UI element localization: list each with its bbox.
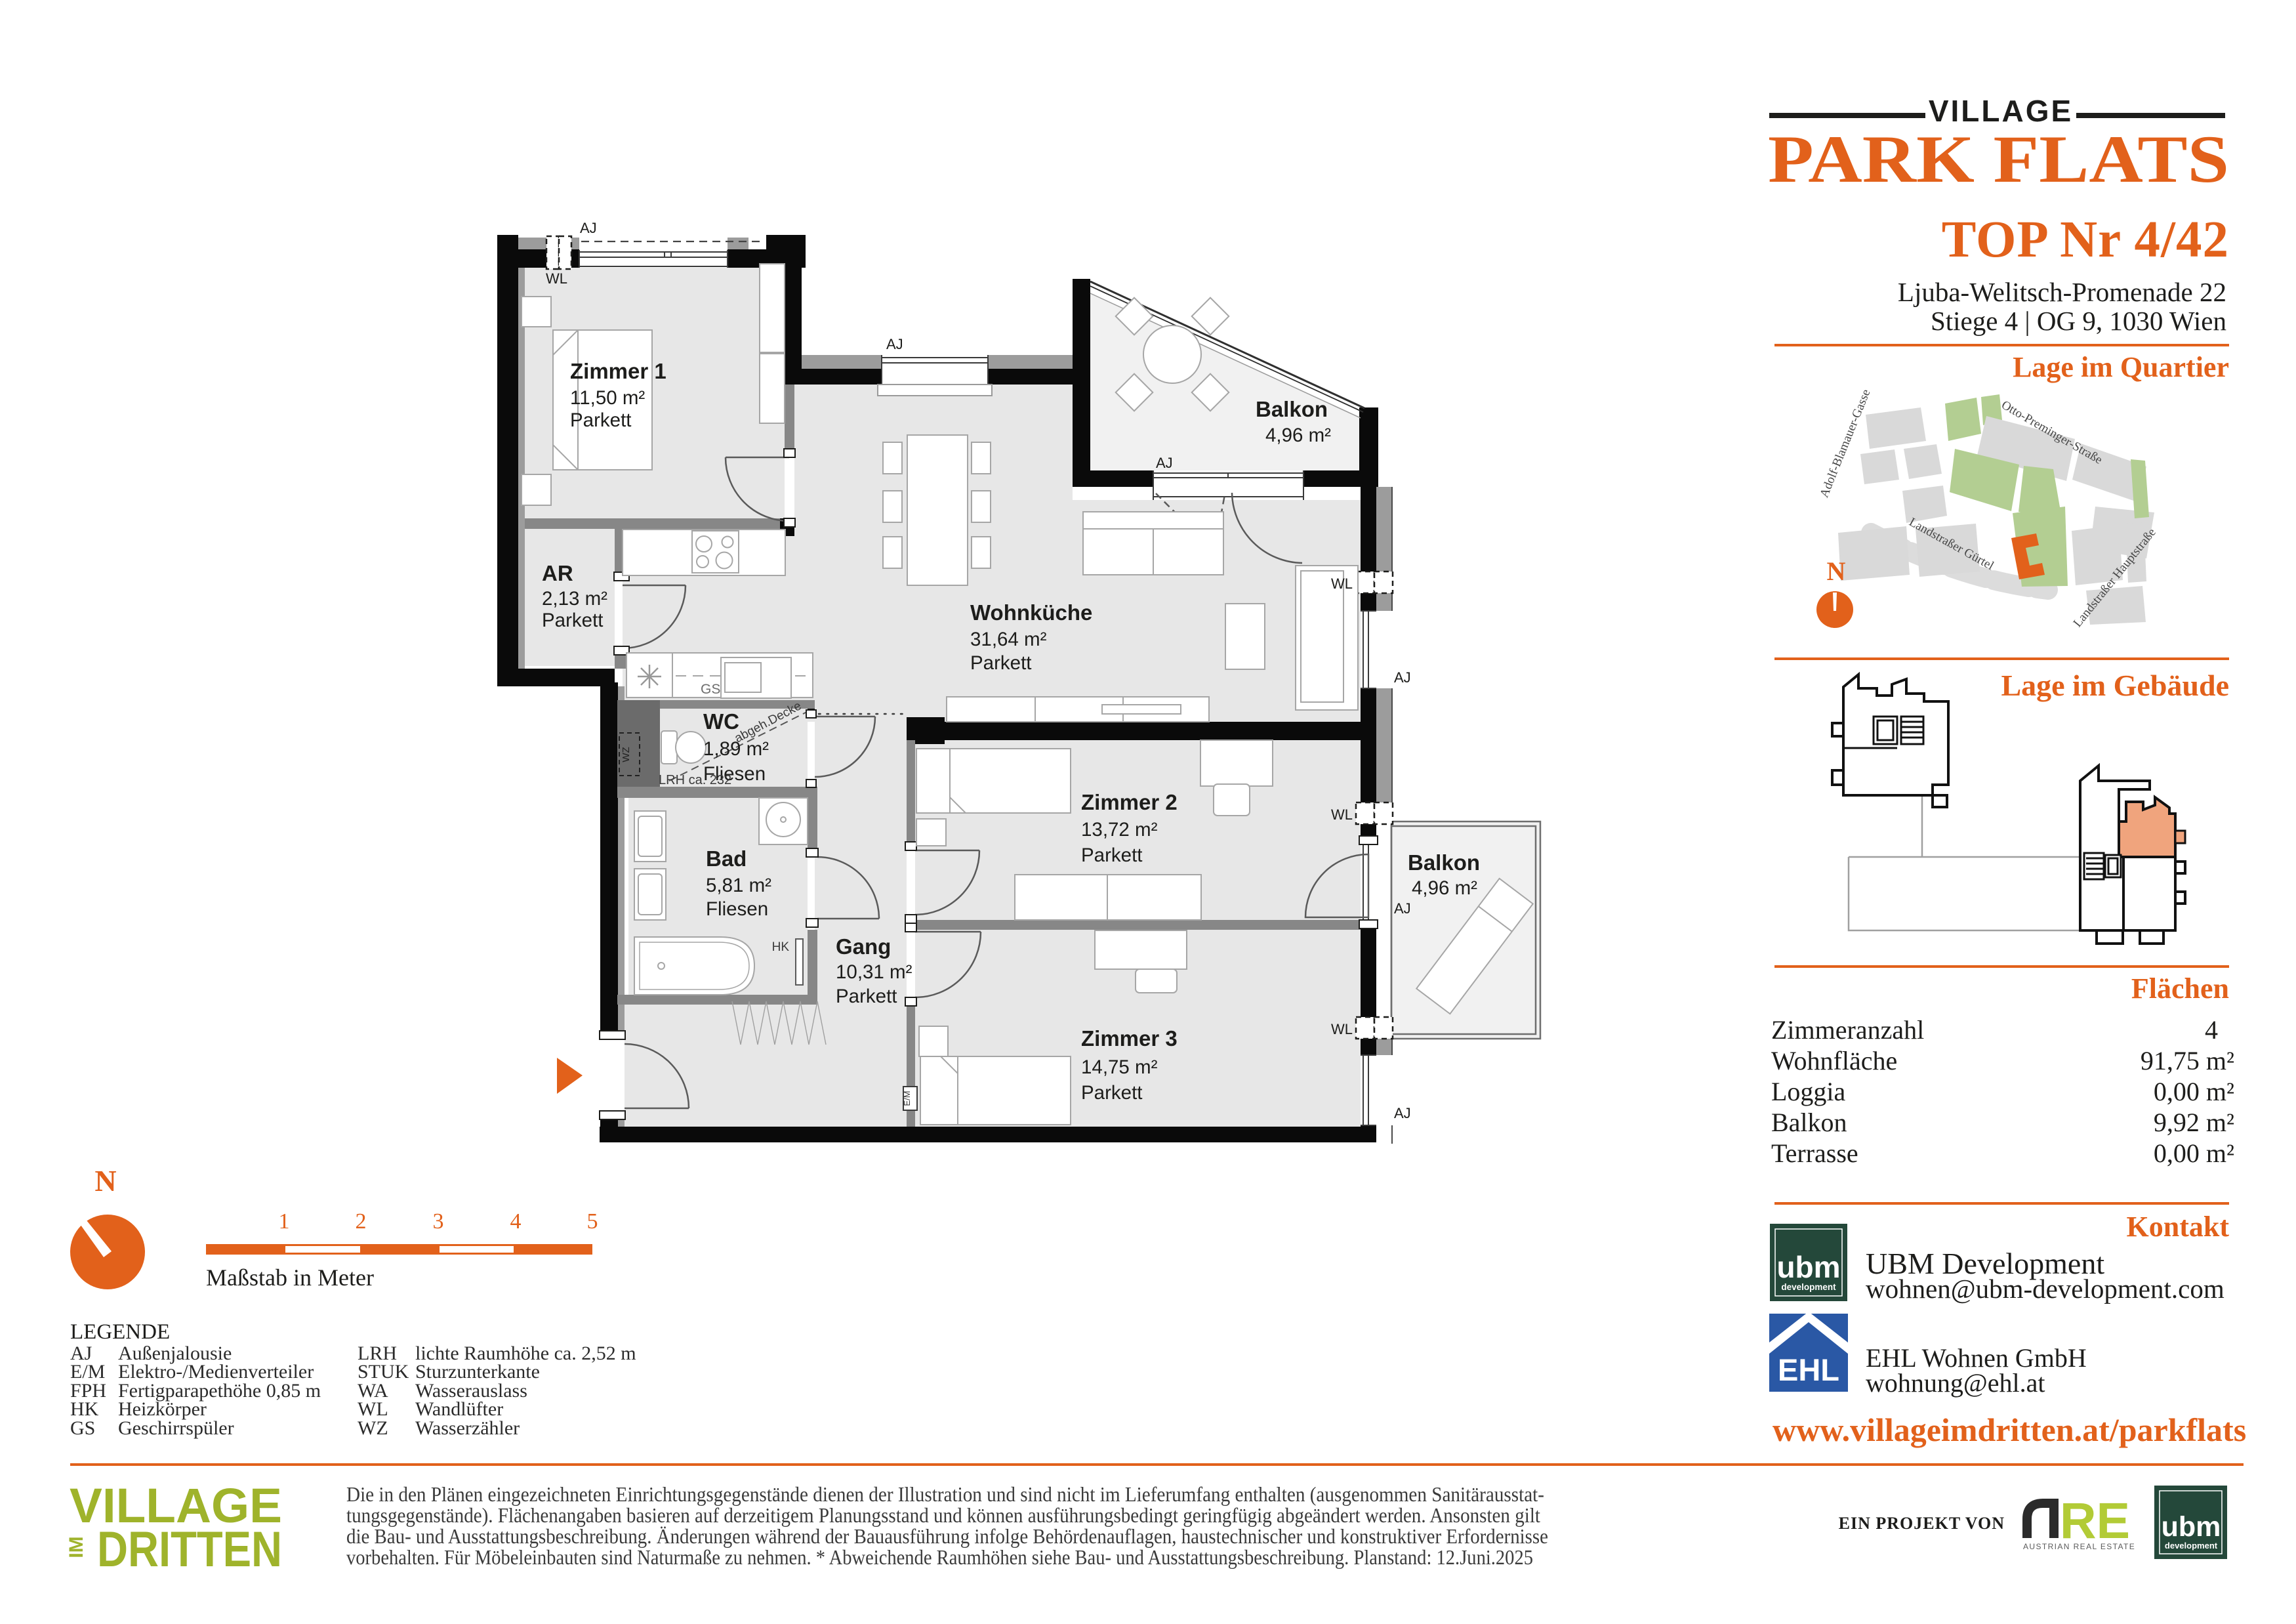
svg-text:GS: GS [70,1417,95,1439]
svg-text:AJ: AJ [886,336,903,352]
svg-text:ubm: ubm [2162,1511,2221,1543]
svg-text:2,13 m²: 2,13 m² [542,588,607,610]
svg-text:Parkett: Parkett [1081,1082,1142,1104]
svg-text:31,64 m²: 31,64 m² [970,629,1047,650]
svg-text:Balkon: Balkon [1408,850,1480,875]
svg-text:Loggia: Loggia [1771,1077,1846,1106]
svg-text:Parkett: Parkett [542,610,603,631]
svg-text:N: N [94,1164,116,1197]
svg-text:Zimmer 1: Zimmer 1 [570,359,666,383]
svg-text:Stiege 4 | OG 9, 1030 Wien: Stiege 4 | OG 9, 1030 Wien [1931,306,2226,336]
svg-text:DRITTEN: DRITTEN [97,1522,282,1577]
svg-text:AJ: AJ [580,220,597,236]
svg-text:AR: AR [542,561,573,585]
svg-text:WC: WC [703,709,739,734]
svg-text:LRH ca. 232: LRH ca. 232 [659,773,731,787]
svg-text:Wohnküche: Wohnküche [970,600,1092,625]
svg-text:vorbehalten. Für Möbeleinbaute: vorbehalten. Für Möbeleinbauten sind Nat… [346,1546,1533,1569]
svg-text:GS: GS [701,682,720,697]
svg-text:WL: WL [1331,575,1353,592]
svg-text:wohnen@ubm-development.com: wohnen@ubm-development.com [1866,1274,2224,1304]
svg-text:LEGENDE: LEGENDE [70,1320,170,1344]
svg-text:2: 2 [356,1209,367,1234]
svg-text:4,96 m²: 4,96 m² [1265,425,1331,446]
svg-text:11,50 m²: 11,50 m² [570,387,645,409]
svg-text:Terrasse: Terrasse [1771,1138,1858,1168]
svg-text:4,96 m²: 4,96 m² [1412,877,1477,899]
svg-text:WZ: WZ [358,1417,388,1439]
svg-text:Balkon: Balkon [1256,397,1328,421]
svg-text:9,92 m²: 9,92 m² [2154,1108,2234,1137]
svg-text:Parkett: Parkett [836,986,897,1007]
svg-text:WZ: WZ [621,747,632,762]
svg-text:EIN PROJEKT VON: EIN PROJEKT VON [1839,1514,2005,1533]
svg-text:Parkett: Parkett [570,409,631,431]
svg-text:0,00 m²: 0,00 m² [2154,1077,2234,1106]
svg-text:4: 4 [2205,1015,2218,1045]
svg-text:3: 3 [433,1209,444,1234]
svg-text:HK: HK [772,940,790,954]
svg-text:Parkett: Parkett [1081,844,1142,866]
svg-text:Die in den Plänen eingezeichne: Die in den Plänen eingezeichneten Einric… [346,1483,1544,1506]
svg-text:development: development [2165,1541,2218,1551]
svg-text:1: 1 [279,1209,290,1234]
svg-text:WL: WL [546,270,567,287]
svg-text:Maßstab in Meter: Maßstab in Meter [206,1264,374,1291]
svg-text:Flächen: Flächen [2131,972,2229,1005]
svg-text:Lage im Gebäude: Lage im Gebäude [2001,669,2229,702]
svg-text:WL: WL [1331,806,1353,823]
svg-text:Fliesen: Fliesen [706,898,768,920]
svg-text:0,00 m²: 0,00 m² [2154,1138,2234,1168]
svg-text:Bad: Bad [706,846,747,871]
svg-text:Zimmer 3: Zimmer 3 [1081,1026,1178,1051]
svg-text:AJ: AJ [1156,455,1173,471]
svg-text:RE: RE [2060,1493,2130,1549]
svg-text:AUSTRIAN REAL ESTATE: AUSTRIAN REAL ESTATE [2023,1542,2135,1551]
svg-text:AJ: AJ [1394,669,1411,686]
svg-text:E/M: E/M [902,1091,912,1106]
svg-text:Zimmeranzahl: Zimmeranzahl [1771,1015,1924,1045]
svg-text:Ljuba-Welitsch-Promenade 22: Ljuba-Welitsch-Promenade 22 [1898,277,2226,307]
svg-text:IM: IM [66,1536,87,1558]
svg-text:Wasserzähler: Wasserzähler [415,1417,520,1439]
svg-text:N: N [1827,556,1846,586]
svg-text:www.villageimdritten.at/parkfl: www.villageimdritten.at/parkflats [1773,1411,2246,1448]
svg-text:4: 4 [510,1209,522,1234]
svg-text:EHL: EHL [1778,1352,1839,1387]
svg-text:tungsgegenstände). Flächenanga: tungsgegenstände). Flächenangaben basier… [346,1504,1540,1527]
svg-text:14,75 m²: 14,75 m² [1081,1056,1158,1078]
svg-text:AJ: AJ [1394,900,1411,917]
svg-text:development: development [1781,1282,1836,1292]
svg-text:Zimmer 2: Zimmer 2 [1081,790,1178,814]
svg-text:wohnung@ehl.at: wohnung@ehl.at [1866,1368,2045,1398]
svg-text:Wohnfläche: Wohnfläche [1771,1046,1897,1075]
svg-text:WL: WL [1331,1021,1353,1037]
svg-text:TOP Nr 4/42: TOP Nr 4/42 [1942,211,2229,268]
svg-text:5: 5 [587,1209,598,1234]
svg-text:5,81 m²: 5,81 m² [706,875,771,896]
svg-text:91,75 m²: 91,75 m² [2141,1046,2234,1075]
svg-text:Lage im Quartier: Lage im Quartier [2013,351,2229,383]
svg-text:Geschirrspüler: Geschirrspüler [118,1417,234,1439]
svg-text:die Bau- und Ausstattungsbesch: die Bau- und Ausstattungsbeschreibung. Ä… [346,1525,1548,1548]
svg-text:ubm: ubm [1776,1250,1840,1284]
svg-text:Balkon: Balkon [1771,1108,1847,1137]
svg-text:Kontakt: Kontakt [2127,1211,2230,1243]
svg-text:Gang: Gang [836,934,891,959]
svg-text:Parkett: Parkett [970,652,1031,674]
svg-text:10,31 m²: 10,31 m² [836,961,912,983]
svg-text:AJ: AJ [1394,1105,1411,1121]
svg-text:13,72 m²: 13,72 m² [1081,819,1158,841]
svg-text:PARK FLATS: PARK FLATS [1768,122,2229,197]
